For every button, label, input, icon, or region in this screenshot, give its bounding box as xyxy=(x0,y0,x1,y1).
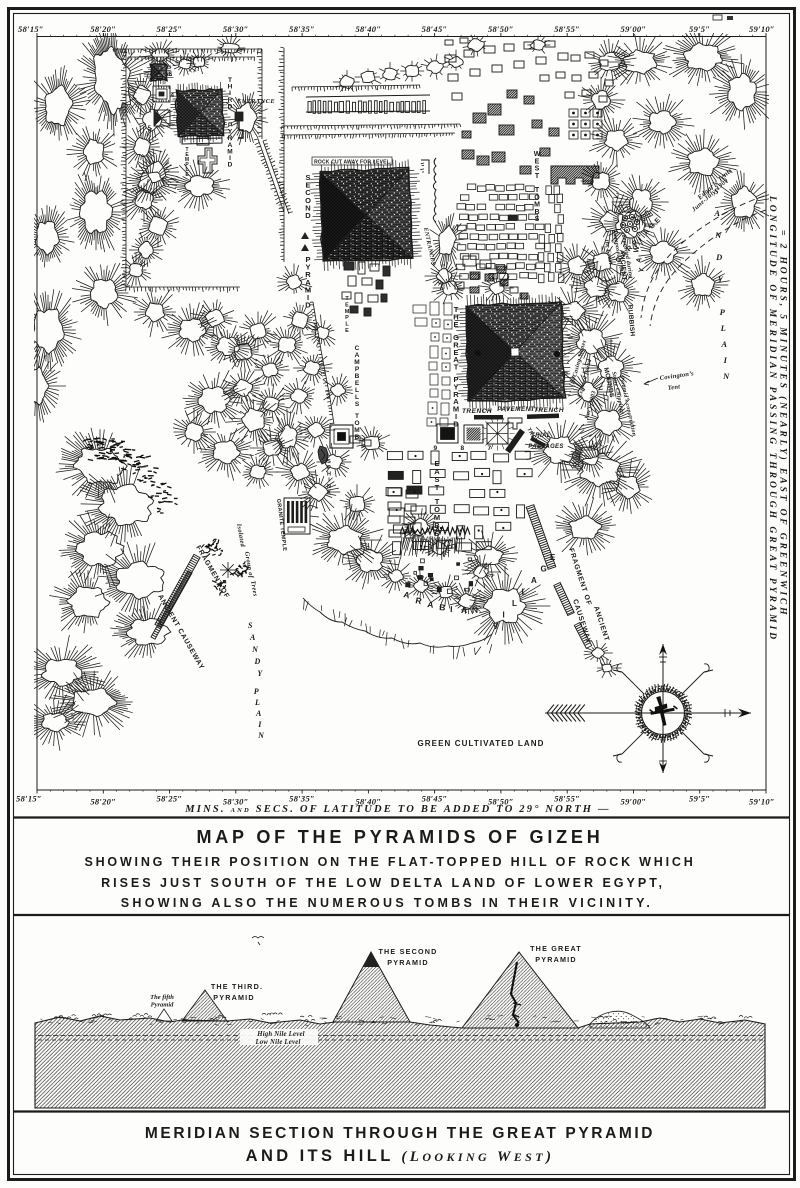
svg-text:B: B xyxy=(534,209,539,216)
svg-text:O: O xyxy=(534,194,540,201)
svg-text:T: T xyxy=(355,413,359,420)
svg-text:D: D xyxy=(254,657,262,666)
svg-text:N: N xyxy=(722,371,731,381)
svg-text:58′55″: 58′55″ xyxy=(554,794,580,804)
svg-text:X: X xyxy=(327,490,331,496)
svg-text:P: P xyxy=(327,465,331,471)
svg-text:GREEN CULTIVATED LAND: GREEN CULTIVATED LAND xyxy=(417,739,544,748)
svg-text:T: T xyxy=(535,187,540,194)
svg-text:5: 5 xyxy=(148,126,153,132)
svg-text:THE SECOND: THE SECOND xyxy=(378,947,437,956)
svg-text:S: S xyxy=(248,621,254,630)
svg-text:8: 8 xyxy=(460,445,465,452)
svg-text:Y: Y xyxy=(257,669,263,678)
svg-text:58′15″: 58′15″ xyxy=(16,794,42,804)
svg-text:W: W xyxy=(534,151,541,158)
svg-text:58′25″: 58′25″ xyxy=(157,794,183,804)
svg-text:58′35″: 58′35″ xyxy=(289,794,315,804)
svg-text:T: T xyxy=(535,173,540,180)
svg-text:58′15″: 58′15″ xyxy=(18,24,44,34)
svg-text:D: D xyxy=(228,162,233,169)
svg-text:M: M xyxy=(354,359,359,366)
svg-text:Y: Y xyxy=(718,274,725,284)
svg-text:58′50″: 58′50″ xyxy=(488,24,514,34)
svg-text:59′10″: 59′10″ xyxy=(749,797,775,807)
svg-text:N: N xyxy=(251,645,259,654)
svg-text:N: N xyxy=(257,731,265,740)
svg-text:59′10″: 59′10″ xyxy=(749,24,775,34)
svg-text:PYRAMID: PYRAMID xyxy=(535,955,577,964)
svg-text:E: E xyxy=(345,328,349,334)
svg-text:S: S xyxy=(535,166,540,173)
svg-text:58′30″: 58′30″ xyxy=(223,24,249,34)
svg-text:B: B xyxy=(355,373,360,380)
svg-text:59′00″: 59′00″ xyxy=(621,797,647,807)
svg-text:ROCK CUT AWAY FOR LEVEL: ROCK CUT AWAY FOR LEVEL xyxy=(314,160,390,166)
svg-text:L: L xyxy=(355,387,359,394)
svg-text:PASSAGES: PASSAGES xyxy=(528,444,563,450)
svg-text:6: 6 xyxy=(169,72,174,78)
svg-text:58′45″: 58′45″ xyxy=(422,794,448,804)
svg-text:P: P xyxy=(355,366,360,373)
svg-text:I: I xyxy=(723,355,729,365)
svg-text:I: I xyxy=(257,720,263,729)
svg-text:S: S xyxy=(434,529,439,538)
svg-text:THE GREAT: THE GREAT xyxy=(530,944,582,953)
svg-text:S: S xyxy=(535,216,540,223)
svg-text:59′5″: 59′5″ xyxy=(689,794,710,804)
svg-text:A: A xyxy=(255,709,263,718)
svg-text:E: E xyxy=(550,553,556,562)
svg-text:A: A xyxy=(713,208,721,218)
svg-text:58′20″: 58′20″ xyxy=(90,797,116,807)
svg-text:SHOWING THEIR POSITION ON THE: SHOWING THEIR POSITION ON THE FLAT-TOPPE… xyxy=(84,855,695,869)
svg-text:L: L xyxy=(720,323,728,333)
svg-text:P: P xyxy=(345,315,349,321)
svg-text:S: S xyxy=(355,401,360,408)
svg-text:THE THIRD.: THE THIRD. xyxy=(211,982,263,991)
svg-text:The fifth: The fifth xyxy=(150,994,174,1001)
svg-text:L: L xyxy=(254,698,261,707)
svg-text:58′55″: 58′55″ xyxy=(554,24,580,34)
svg-text:B: B xyxy=(439,602,446,613)
svg-text:PAVEMENT: PAVEMENT xyxy=(497,406,535,413)
svg-text:E: E xyxy=(355,380,360,387)
svg-text:A: A xyxy=(720,339,728,349)
svg-text:E: E xyxy=(453,320,458,329)
svg-text:TRENCH: TRENCH xyxy=(534,407,564,414)
svg-text:D: D xyxy=(228,103,233,110)
svg-text:PYRAMID: PYRAMID xyxy=(213,993,255,1002)
svg-text:58′45″: 58′45″ xyxy=(422,24,448,34)
svg-text:RISES JUST SOUTH OF THE LOW DE: RISES JUST SOUTH OF THE LOW DELTA LAND O… xyxy=(101,876,665,890)
svg-text:Low Nile Level: Low Nile Level xyxy=(254,1039,300,1046)
svg-text:58′20″: 58′20″ xyxy=(90,24,116,34)
svg-text:L: L xyxy=(522,588,527,597)
svg-text:PYRAMID: PYRAMID xyxy=(387,958,429,967)
svg-text:= 2 HOURS, 5 MINUTES (NEARLY): = 2 HOURS, 5 MINUTES (NEARLY) EAST OF GR… xyxy=(778,230,789,617)
svg-text:Pyramid: Pyramid xyxy=(151,1002,174,1009)
svg-text:P: P xyxy=(720,307,727,317)
svg-text:4: 4 xyxy=(171,93,176,99)
svg-text:ENTRANCE: ENTRANCE xyxy=(236,98,276,105)
svg-text:59′5″: 59′5″ xyxy=(689,24,710,34)
svg-text:E: E xyxy=(535,158,540,165)
svg-text:58′40″: 58′40″ xyxy=(355,24,381,34)
svg-text:58′35″: 58′35″ xyxy=(289,24,315,34)
svg-text:O: O xyxy=(354,420,359,427)
svg-text:V: V xyxy=(493,622,499,631)
svg-text:B: B xyxy=(355,434,360,441)
svg-text:G: G xyxy=(541,565,547,574)
svg-text:T: T xyxy=(454,363,459,372)
svg-text:M: M xyxy=(345,309,350,315)
svg-text:D: D xyxy=(305,211,311,220)
svg-text:P: P xyxy=(254,687,260,696)
svg-text:High Nile Level: High Nile Level xyxy=(256,1031,305,1038)
svg-text:N: N xyxy=(327,484,331,490)
svg-text:7: 7 xyxy=(487,445,492,452)
svg-text:AND ITS HILL (LOOKING WEST): AND ITS HILL (LOOKING WEST) xyxy=(246,1147,555,1165)
svg-text:TRENCH: TRENCH xyxy=(462,408,492,415)
svg-text:LONGITUDE OF MERIDIAN PASSING: LONGITUDE OF MERIDIAN PASSING THROUGH GR… xyxy=(767,195,777,642)
svg-text:SHOWING ALSO THE NUMEROUS TOMB: SHOWING ALSO THE NUMEROUS TOMBS IN THEIR… xyxy=(121,896,653,910)
svg-text:C: C xyxy=(355,345,360,352)
svg-text:D: D xyxy=(715,252,724,262)
svg-text:I: I xyxy=(503,611,505,620)
svg-text:N: N xyxy=(472,605,479,615)
svg-text:A: A xyxy=(531,576,537,585)
svg-text:N: N xyxy=(714,230,723,240)
svg-text:MAP OF THE PYRAMIDS OF GIZEH: MAP OF THE PYRAMIDS OF GIZEH xyxy=(196,827,603,847)
svg-text:A: A xyxy=(249,633,257,642)
svg-text:L: L xyxy=(512,599,517,608)
svg-text:58′25″: 58′25″ xyxy=(157,24,183,34)
svg-text:H: H xyxy=(327,471,331,477)
svg-text:MERIDIAN SECTION THROUGH THE G: MERIDIAN SECTION THROUGH THE GREAT PYRAM… xyxy=(145,1125,655,1142)
svg-text:A: A xyxy=(355,352,360,359)
svg-text:M: M xyxy=(354,427,359,434)
svg-text:D: D xyxy=(305,301,311,310)
svg-text:E: E xyxy=(345,302,349,308)
svg-text:T: T xyxy=(435,483,440,492)
svg-text:M: M xyxy=(534,202,540,209)
svg-text:S: S xyxy=(327,459,331,465)
svg-text:L: L xyxy=(355,394,359,401)
svg-text:59′00″: 59′00″ xyxy=(621,24,647,34)
svg-text:A: A xyxy=(461,605,467,615)
